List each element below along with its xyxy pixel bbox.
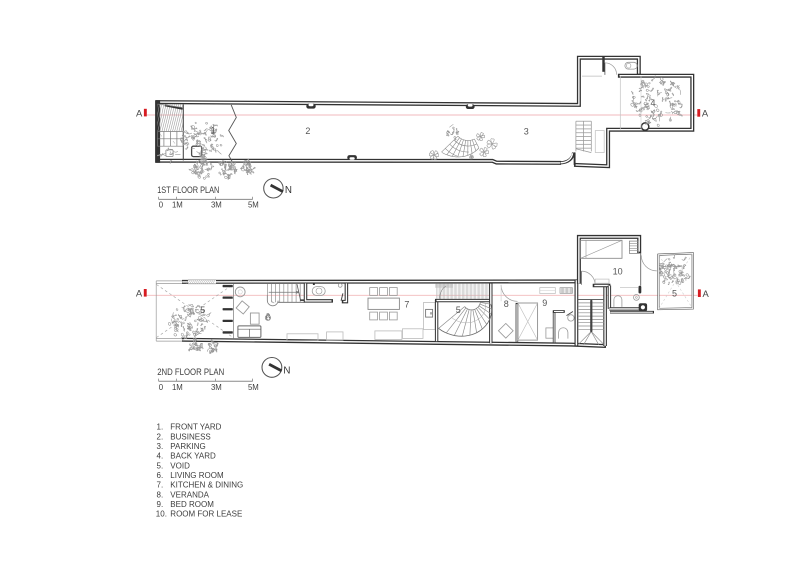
- svg-text:10.: 10.: [156, 510, 167, 519]
- svg-text:BUSINESS: BUSINESS: [170, 432, 210, 441]
- svg-text:5: 5: [200, 305, 205, 315]
- svg-text:ROOM FOR LEASE: ROOM FOR LEASE: [170, 510, 242, 519]
- svg-text:3M: 3M: [211, 383, 222, 392]
- svg-text:1: 1: [211, 126, 216, 136]
- svg-text:A: A: [136, 107, 143, 118]
- svg-text:2: 2: [305, 126, 310, 136]
- svg-text:N: N: [283, 365, 290, 376]
- svg-text:5: 5: [456, 305, 461, 315]
- svg-text:KITCHEN & DINING: KITCHEN & DINING: [170, 481, 243, 490]
- svg-text:1M: 1M: [172, 201, 183, 210]
- svg-text:LIVING ROOM: LIVING ROOM: [170, 471, 224, 480]
- svg-text:0: 0: [159, 201, 164, 210]
- svg-text:3M: 3M: [211, 201, 222, 210]
- svg-text:6.: 6.: [157, 471, 164, 480]
- svg-text:A: A: [703, 288, 710, 299]
- svg-text:7: 7: [404, 300, 409, 310]
- svg-text:FRONT YARD: FRONT YARD: [170, 423, 221, 432]
- svg-text:PARKING: PARKING: [170, 442, 205, 451]
- svg-text:3.: 3.: [157, 442, 164, 451]
- svg-text:5M: 5M: [248, 383, 259, 392]
- svg-text:5: 5: [672, 289, 677, 299]
- svg-text:A: A: [136, 288, 143, 299]
- svg-text:1.: 1.: [157, 423, 164, 432]
- svg-text:7.: 7.: [157, 481, 164, 490]
- svg-text:2ND FLOOR PLAN: 2ND FLOOR PLAN: [157, 366, 224, 377]
- svg-text:1M: 1M: [172, 383, 183, 392]
- svg-text:8: 8: [504, 299, 509, 309]
- svg-text:10: 10: [613, 267, 623, 277]
- svg-text:3: 3: [524, 126, 529, 136]
- svg-text:9.: 9.: [157, 500, 164, 509]
- svg-text:VERANDA: VERANDA: [170, 490, 209, 499]
- svg-text:1ST FLOOR PLAN: 1ST FLOOR PLAN: [157, 184, 219, 195]
- svg-text:9: 9: [542, 298, 547, 308]
- svg-text:N: N: [285, 185, 292, 196]
- svg-text:BED ROOM: BED ROOM: [170, 500, 214, 509]
- svg-text:5M: 5M: [248, 201, 259, 210]
- svg-text:VOID: VOID: [170, 461, 190, 470]
- svg-text:BACK YARD: BACK YARD: [170, 452, 216, 461]
- svg-text:4.: 4.: [157, 452, 164, 461]
- svg-text:2.: 2.: [157, 432, 164, 441]
- svg-text:8.: 8.: [157, 490, 164, 499]
- svg-text:0: 0: [159, 383, 164, 392]
- svg-text:A: A: [702, 108, 709, 119]
- svg-text:5.: 5.: [157, 461, 164, 470]
